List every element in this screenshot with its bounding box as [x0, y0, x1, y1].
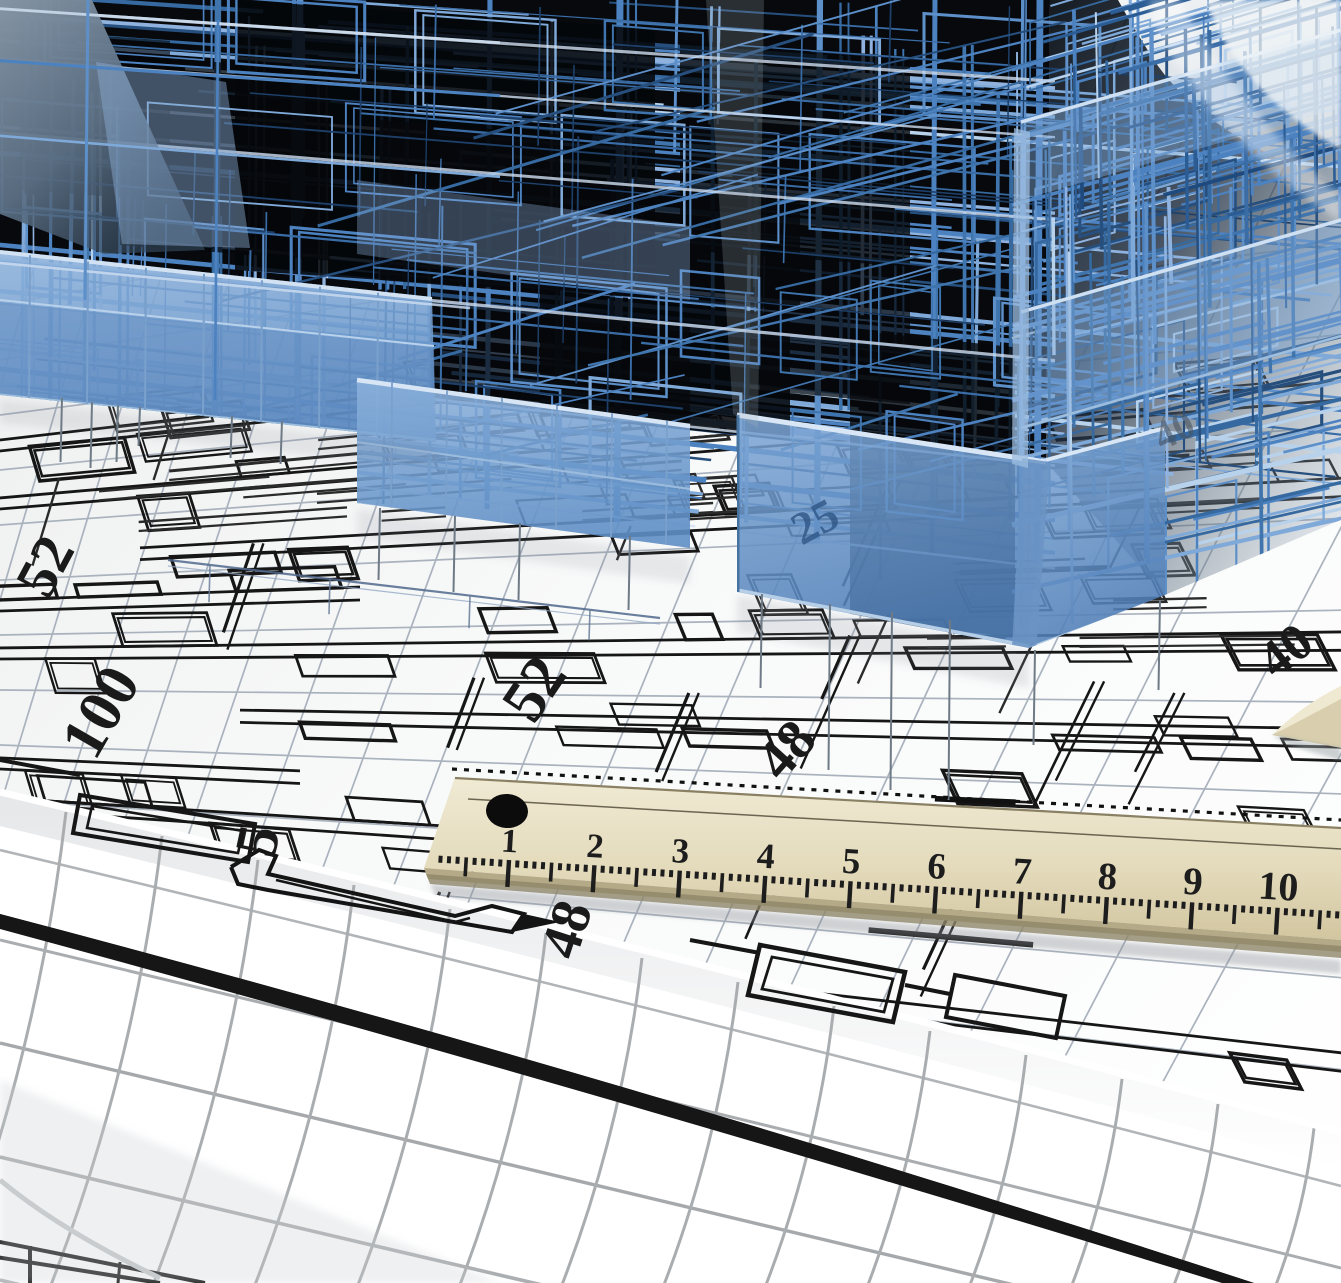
svg-text:4: 4: [756, 835, 776, 876]
svg-text:2: 2: [585, 827, 604, 866]
svg-text:5: 5: [841, 840, 862, 882]
svg-text:3: 3: [671, 831, 691, 871]
svg-text:1: 1: [500, 823, 519, 861]
svg-text:7: 7: [1011, 850, 1033, 893]
svg-text:6: 6: [926, 846, 947, 888]
svg-text:10: 10: [1257, 862, 1300, 909]
svg-text:9: 9: [1182, 859, 1204, 904]
svg-text:8: 8: [1097, 856, 1119, 899]
